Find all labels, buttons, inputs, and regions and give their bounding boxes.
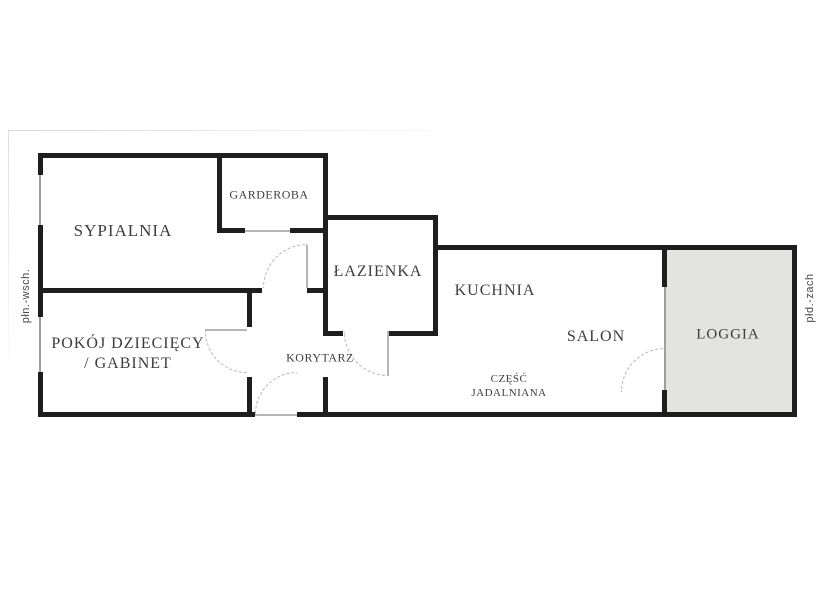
compass-label-southwest: płd.-zach [804,273,816,322]
label-pokoj-dzieciecy: POKÓJ DZIECIĘCY / GABINET [51,334,204,374]
watermark-edge-top [8,130,588,131]
label-pokoj-line1: POKÓJ DZIECIĘCY [51,335,204,352]
wall-left-outer [38,372,43,417]
wall-garderoba-left [217,153,222,233]
wall-loggia-left [662,390,667,417]
label-loggia: LOGGIA [696,327,760,344]
wall-spine-vertical [323,153,328,336]
entrance-threshold [255,414,297,416]
wall-left-outer [38,225,43,317]
wall-bottom-outer [38,412,255,417]
wall-sypialnia-bottom [307,288,328,293]
wall-lazienka-bottom [388,331,438,336]
wall-lazienka-top [323,215,438,220]
wall-pokoj-korytarz [247,288,252,327]
label-pokoj-line2: / GABINET [84,355,172,372]
wall-top-right-block [433,245,797,250]
wall-bottom-outer [297,412,797,417]
wall-lazienka-bottom [323,331,343,336]
label-sypialnia: SYPIALNIA [74,221,173,241]
watermark-edge-left [8,130,9,425]
wall-sypialnia-bottom [38,288,262,293]
label-korytarz: KORYTARZ [286,351,354,366]
label-czesc-line2: JADALNIANA [471,387,546,399]
label-czesc-line1: CZĘŚĆ [491,373,528,385]
label-salon: SALON [567,328,625,346]
door-arc-sypialnia [263,244,307,288]
wall-top-left-block [38,153,328,158]
wall-korytarz-stub [323,377,328,417]
window-pokoj [39,317,41,372]
wall-loggia-right [792,245,797,417]
label-czesc-jadalniana: CZĘŚĆ JADALNIANA [471,372,546,400]
door-arc-loggia [621,348,665,392]
wall-lazienka-right [433,215,438,336]
wall-left-outer [38,153,43,175]
garderoba-opening [245,230,290,232]
label-kuchnia: KUCHNIA [455,282,536,300]
wall-garderoba-bottom [217,228,245,233]
wall-pokoj-korytarz [247,377,252,417]
door-arc-pokoj [205,331,247,373]
floor-plan: SYPIALNIA GARDEROBA ŁAZIENKA KUCHNIA SAL… [0,0,823,600]
door-arc-entrance [255,372,297,414]
compass-label-northeast: płn.-wsch. [20,269,32,324]
label-garderoba: GARDEROBA [229,188,308,203]
window-sypialnia [39,175,41,225]
wall-loggia-left [662,245,667,287]
label-lazienka: ŁAZIENKA [334,263,423,281]
